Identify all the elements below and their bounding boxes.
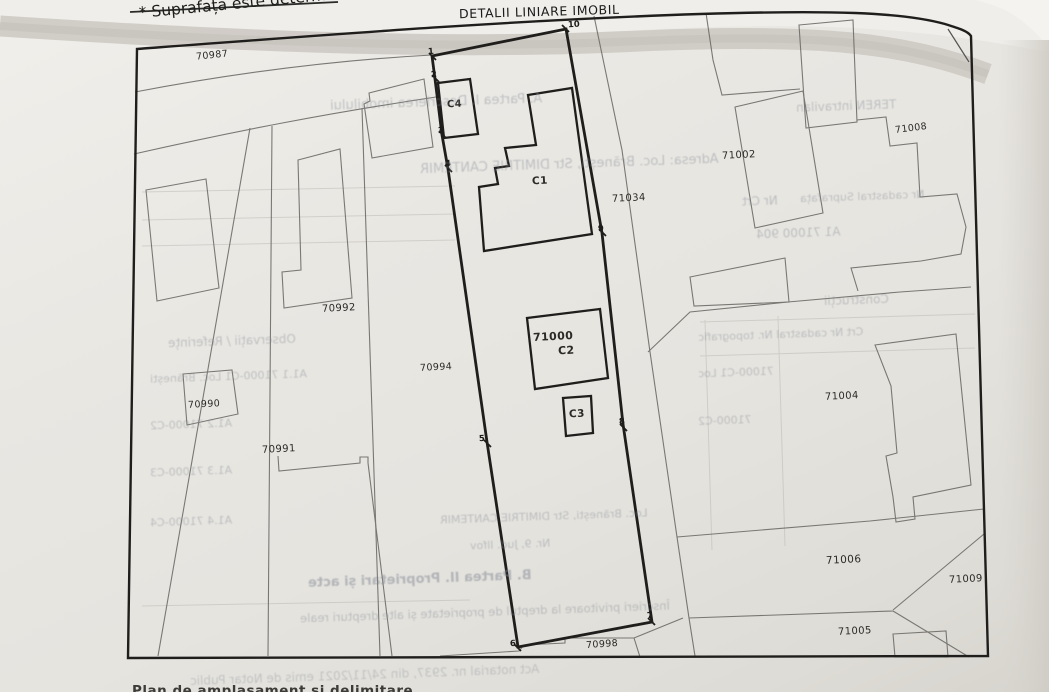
parcel-label-71034: 71034 [612, 192, 646, 205]
vertex-label-10: 10 [568, 20, 581, 31]
bleedthrough-text: A1 71000 904 [756, 225, 841, 242]
parcel-label-70998: 70998 [586, 638, 619, 651]
parcel-label-71009: 71009 [949, 573, 983, 586]
bottom-clipped-heading: Plan de amplasament și delimitare [132, 683, 413, 692]
scanned-cadastral-page: * Suprafața este determinată DETALII LIN… [0, 0, 1049, 692]
parcel-label-70994: 70994 [420, 361, 453, 374]
bleedthrough-text: Construcții [824, 292, 889, 308]
parcel-label-71004: 71004 [825, 390, 859, 403]
page-edge-shade [998, 40, 1049, 692]
subject-buildings [438, 79, 608, 436]
vertex-label-3: 3 [438, 126, 445, 136]
parcel-label-71002: 71002 [722, 149, 756, 162]
vertex-label-2: 2 [431, 70, 438, 80]
parcel-label-70991: 70991 [262, 443, 296, 456]
vertex-label-5: 5 [479, 434, 486, 444]
bleedthrough-text: Nr Crt [742, 193, 778, 208]
building-label-c1: C1 [532, 175, 548, 188]
parcel-label-70992: 70992 [322, 302, 356, 315]
bleedthrough-text: 71000-C1 Loc [698, 365, 774, 381]
building-label-c3: C3 [569, 408, 585, 421]
vertex-label-6: 6 [510, 639, 517, 649]
vertex-label-1: 1 [428, 47, 435, 57]
vertex-label-9: 9 [598, 224, 605, 234]
building-label-c2: C2 [558, 344, 575, 358]
parcel-label-71006: 71006 [826, 553, 862, 567]
bleedthrough-text: 71000-C2 [698, 413, 752, 428]
parcel-label-71005: 71005 [838, 625, 872, 638]
parcel-label-70990: 70990 [188, 398, 221, 411]
bleedthrough-text: Nr. 9, Jud. Ilfov [470, 537, 551, 553]
vertex-label-8: 8 [619, 417, 626, 427]
parcel-label-71000: 71000 [533, 329, 574, 344]
